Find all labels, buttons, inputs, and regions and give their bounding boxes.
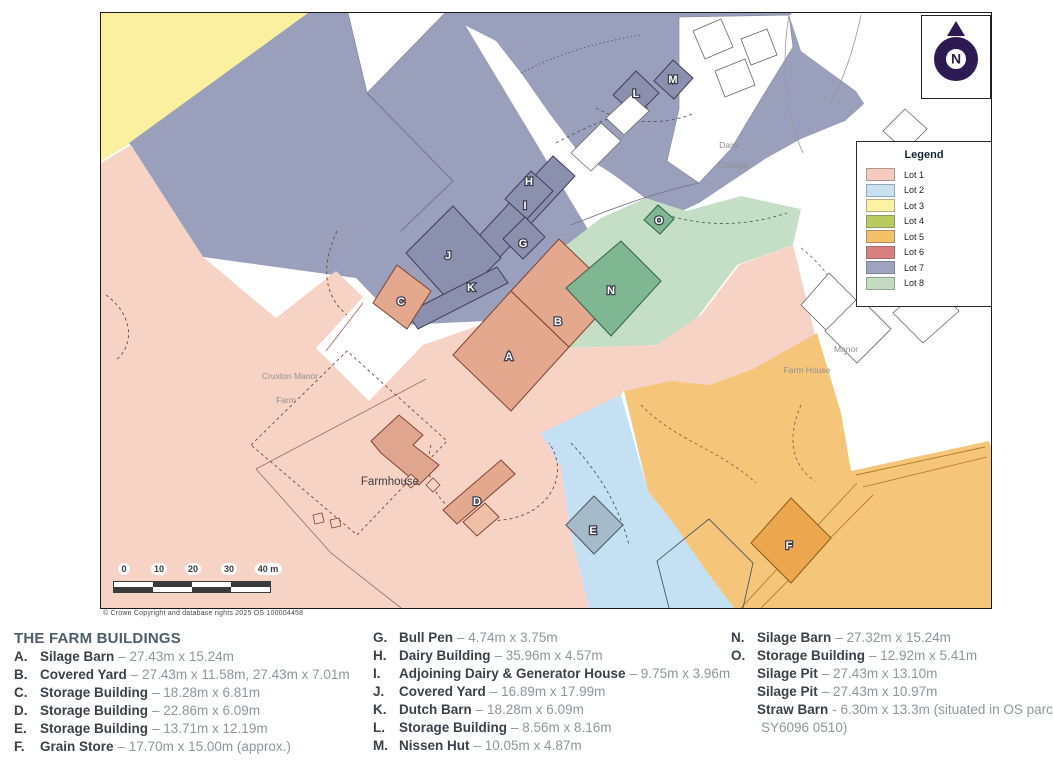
item-letter: H. <box>373 647 399 665</box>
legend-label: Lot 5 <box>904 232 924 242</box>
label-cottage: Cottage <box>718 160 748 170</box>
scale-tick: 30 <box>221 563 237 575</box>
legend-row: Lot 1 <box>857 167 991 183</box>
farm-sale-plan-page: { "map": { "copyright": "© Crown Copyrig… <box>0 0 1053 763</box>
item-detail: – 16.89m x 17.99m <box>490 684 606 699</box>
buildings-list-column-2: G.Bull Pen– 4.74m x 3.75m H.Dairy Buildi… <box>373 629 730 755</box>
list-item-c: C.Storage Building– 18.28m x 6.81m <box>14 684 350 702</box>
north-arrow-icon <box>947 21 965 36</box>
buildings-list-heading: THE FARM BUILDINGS <box>14 629 350 648</box>
legend-label: Lot 1 <box>904 170 924 180</box>
legend-rows: Lot 1 Lot 2 Lot 3 Lot 4 Lot 5 Lot 6 <box>857 167 991 291</box>
building-label-m: M <box>668 74 677 86</box>
legend-swatch-lot-5 <box>866 230 895 243</box>
item-name: Silage Barn <box>40 649 114 664</box>
item-name: Storage Building <box>40 721 148 736</box>
item-detail: – 18.28m x 6.81m <box>152 685 260 700</box>
item-name: Silage Barn <box>757 630 831 645</box>
legend-row: Lot 7 <box>857 260 991 276</box>
legend-label: Lot 3 <box>904 201 924 211</box>
compass-icon: N <box>934 37 978 81</box>
north-arrow-box: N <box>921 15 991 99</box>
item-detail: – 27.43m x 11.58m, 27.43m x 7.01m <box>131 667 350 682</box>
label-farm: Farm <box>276 395 296 405</box>
list-item-silage-pit-1: Silage Pit– 27.43m x 13.10m <box>731 665 1053 683</box>
item-detail: – 35.96m x 4.57m <box>495 648 603 663</box>
building-label-g: G <box>519 238 528 250</box>
buildings-list-column-3: N.Silage Barn– 27.32m x 15.24m O.Storage… <box>731 629 1053 737</box>
label-dairy: Dairy <box>719 140 740 150</box>
item-detail: – 27.32m x 15.24m <box>835 630 951 645</box>
building-label-a: A <box>505 351 513 363</box>
legend-swatch-lot-4 <box>866 215 895 228</box>
item-letter: K. <box>373 701 399 719</box>
item-detail: - 6.30m x 13.3m (situated in OS parcel <box>832 702 1053 717</box>
list-item-h: H.Dairy Building– 35.96m x 4.57m <box>373 647 730 665</box>
building-label-o: O <box>655 215 664 227</box>
item-name: Storage Building <box>757 648 865 663</box>
list-item-e: E.Storage Building– 13.71m x 12.19m <box>14 720 350 738</box>
item-name: Covered Yard <box>399 684 486 699</box>
legend-label: Lot 6 <box>904 247 924 257</box>
north-label: N <box>951 50 961 66</box>
item-name: Nissen Hut <box>399 738 470 753</box>
building-label-k: K <box>467 282 475 294</box>
buildings-list-column-1: THE FARM BUILDINGS A.Silage Barn– 27.43m… <box>14 629 350 756</box>
item-detail: – 17.70m x 15.00m (approx.) <box>118 739 291 754</box>
scale-tick: 10 <box>151 563 167 575</box>
list-item-j: J.Covered Yard– 16.89m x 17.99m <box>373 683 730 701</box>
list-item-straw-barn: Straw Barn- 6.30m x 13.3m (situated in O… <box>731 701 1053 719</box>
item-letter: G. <box>373 629 399 647</box>
list-item-g: G.Bull Pen– 4.74m x 3.75m <box>373 629 730 647</box>
label-cruxton-manor: Cruxton Manor <box>262 371 318 381</box>
legend: Legend Lot 1 Lot 2 Lot 3 Lot 4 Lot 5 <box>856 141 992 307</box>
item-letter: O. <box>731 647 757 665</box>
scale-bar: 0 10 20 30 40 m <box>111 563 311 599</box>
building-label-d: D <box>473 496 481 508</box>
item-letter: C. <box>14 684 40 702</box>
item-letter: J. <box>373 683 399 701</box>
legend-label: Lot 8 <box>904 278 924 288</box>
legend-swatch-lot-7 <box>866 261 895 274</box>
list-item-n: N.Silage Barn– 27.32m x 15.24m <box>731 629 1053 647</box>
item-detail: SY6096 0510) <box>761 720 847 735</box>
item-name: Silage Pit <box>757 684 818 699</box>
item-letter: N. <box>731 629 757 647</box>
item-name: Storage Building <box>399 720 507 735</box>
building-label-f: F <box>786 540 793 552</box>
list-item-k: K.Dutch Barn– 18.28m x 6.09m <box>373 701 730 719</box>
item-letter: L. <box>373 719 399 737</box>
legend-row: Lot 4 <box>857 214 991 230</box>
small-structure <box>330 518 341 528</box>
item-detail: – 27.43m x 13.10m <box>822 666 938 681</box>
item-detail: – 27.43m x 10.97m <box>822 684 938 699</box>
item-name: Storage Building <box>40 703 148 718</box>
legend-swatch-lot-3 <box>866 199 895 212</box>
list-item-m: M.Nissen Hut– 10.05m x 4.87m <box>373 737 730 755</box>
legend-label: Lot 7 <box>904 263 924 273</box>
item-name: Bull Pen <box>399 630 453 645</box>
item-name: Dutch Barn <box>399 702 472 717</box>
legend-row: Lot 8 <box>857 276 991 292</box>
legend-swatch-lot-2 <box>866 184 895 197</box>
legend-row: Lot 5 <box>857 229 991 245</box>
site-plan-drawing: Cruxton Manor Farm Dairy Cottage Manor F… <box>101 13 991 608</box>
legend-row: Lot 3 <box>857 198 991 214</box>
building-label-i: I <box>523 200 526 212</box>
item-name: Storage Building <box>40 685 148 700</box>
list-item-b: B.Covered Yard– 27.43m x 11.58m, 27.43m … <box>14 666 350 684</box>
item-detail: – 10.05m x 4.87m <box>474 738 582 753</box>
legend-row: Lot 6 <box>857 245 991 261</box>
item-letter: D. <box>14 702 40 720</box>
legend-swatch-lot-8 <box>866 277 895 290</box>
item-name: Silage Pit <box>757 666 818 681</box>
list-item-o: O.Storage Building– 12.92m x 5.41m <box>731 647 1053 665</box>
item-detail: – 22.86m x 6.09m <box>152 703 260 718</box>
scale-bar-segments <box>113 581 271 593</box>
label-farm-house: Farm House <box>784 365 831 375</box>
legend-swatch-lot-6 <box>866 246 895 259</box>
list-item-silage-pit-2: Silage Pit– 27.43m x 10.97m <box>731 683 1053 701</box>
building-label-n: N <box>607 285 615 297</box>
item-detail: – 4.74m x 3.75m <box>457 630 558 645</box>
item-detail: – 18.28m x 6.09m <box>476 702 584 717</box>
building-label-h: H <box>525 176 533 188</box>
legend-label: Lot 2 <box>904 185 924 195</box>
item-letter: F. <box>14 738 40 756</box>
item-name: Covered Yard <box>40 667 127 682</box>
list-item-d: D.Storage Building– 22.86m x 6.09m <box>14 702 350 720</box>
list-item-straw-barn-continued: SY6096 0510) <box>731 719 1053 737</box>
list-item-f: F.Grain Store– 17.70m x 15.00m (approx.) <box>14 738 350 756</box>
item-letter: E. <box>14 720 40 738</box>
site-plan-map: Cruxton Manor Farm Dairy Cottage Manor F… <box>100 12 992 609</box>
legend-label: Lot 4 <box>904 216 924 226</box>
item-name: Straw Barn <box>757 702 828 717</box>
building-label-e: E <box>589 525 596 537</box>
building-label-c: C <box>397 296 405 308</box>
item-name: Adjoining Dairy & Generator House <box>399 666 626 681</box>
item-detail: – 12.92m x 5.41m <box>869 648 977 663</box>
item-letter: M. <box>373 737 399 755</box>
item-letter: A. <box>14 648 40 666</box>
item-detail: – 9.75m x 3.96m <box>630 666 731 681</box>
building-label-b: B <box>554 316 562 328</box>
building-label-l: L <box>633 88 640 100</box>
item-name: Dairy Building <box>399 648 491 663</box>
label-farmhouse: Farmhouse <box>361 476 419 488</box>
list-item-a: A.Silage Barn– 27.43m x 15.24m <box>14 648 350 666</box>
building-label-j: J <box>445 250 451 262</box>
item-name: Grain Store <box>40 739 114 754</box>
item-letter: I. <box>373 665 399 683</box>
item-detail: – 13.71m x 12.19m <box>152 721 268 736</box>
item-detail: – 8.56m x 8.16m <box>511 720 612 735</box>
legend-swatch-lot-1 <box>866 168 895 181</box>
item-letter: B. <box>14 666 40 684</box>
label-manor: Manor <box>834 344 858 354</box>
copyright-note: © Crown Copyright and database rights 20… <box>103 610 303 617</box>
legend-row: Lot 2 <box>857 183 991 199</box>
list-item-l: L.Storage Building– 8.56m x 8.16m <box>373 719 730 737</box>
item-detail: – 27.43m x 15.24m <box>118 649 234 664</box>
legend-title: Legend <box>857 149 991 161</box>
scale-tick: 20 <box>185 563 201 575</box>
list-item-i: I.Adjoining Dairy & Generator House– 9.7… <box>373 665 730 683</box>
scale-tick: 40 m <box>255 563 282 575</box>
scale-tick: 0 <box>118 563 129 575</box>
small-structure <box>313 513 324 524</box>
